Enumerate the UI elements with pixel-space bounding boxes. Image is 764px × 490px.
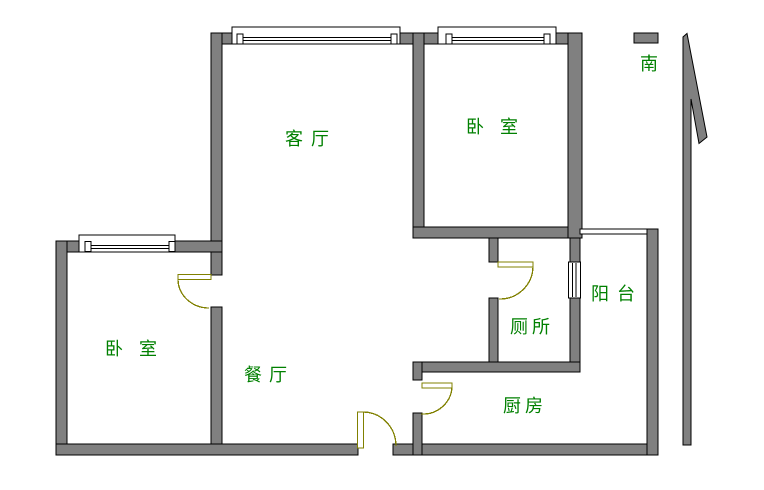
window-living-room — [232, 27, 400, 44]
window-jamb — [85, 242, 91, 252]
windows — [79, 27, 581, 298]
door-swing-arc — [499, 267, 533, 299]
wall-bottom-right — [393, 444, 658, 455]
south-arrow-icon — [683, 34, 707, 446]
label-balcony: 阳台 — [591, 286, 643, 304]
window-bedroom-west — [79, 235, 175, 252]
window-toilet-balcony — [569, 262, 581, 298]
label-kitchen: 厨房 — [503, 398, 547, 416]
window-jamb — [446, 34, 452, 44]
door-swing-arc — [178, 280, 209, 308]
label-living-room: 客厅 — [285, 131, 337, 149]
window-frame — [569, 262, 581, 298]
wall-kitchen-top — [413, 362, 580, 372]
window-bedroom-north — [438, 27, 556, 44]
window-jamb — [169, 242, 175, 252]
door-bedroom-west — [178, 275, 211, 309]
wall-toilet-left-upper — [489, 238, 498, 262]
label-bedroom-north: 卧室 — [466, 119, 534, 137]
window-jamb — [544, 34, 550, 44]
door-swing-arc — [364, 412, 397, 446]
doors — [178, 262, 533, 448]
label-south: 南 — [640, 56, 658, 74]
door-kitchen — [421, 383, 452, 414]
wall-west-outer — [56, 241, 67, 455]
wall-toilet-balcony — [570, 238, 580, 372]
label-toilet: 厕所 — [510, 319, 554, 337]
wall-toilet-left-lower — [489, 298, 498, 372]
wall-west-main-upper — [211, 33, 222, 275]
window-frame — [438, 27, 556, 44]
window-frame — [232, 27, 400, 44]
wall-living-bedroom-divider — [413, 33, 424, 238]
wall-kitchen-door-stub — [413, 362, 422, 380]
wall-hallway-top — [413, 227, 582, 238]
window-jamb — [391, 34, 397, 44]
door-leaf — [422, 383, 452, 388]
wall-west-main-lower — [211, 307, 222, 455]
window-jamb — [237, 34, 243, 44]
door-entrance — [358, 412, 397, 448]
window-frame — [79, 235, 175, 252]
label-dining-room: 餐厅 — [244, 367, 294, 385]
balcony-railing — [580, 229, 647, 234]
door-swing-arc — [421, 388, 452, 414]
door-leaf — [498, 262, 533, 267]
wall-kitchen-dining-lower — [413, 413, 422, 455]
door-leaf — [178, 275, 211, 280]
label-bedroom-west: 卧室 — [105, 341, 173, 359]
door-toilet — [498, 262, 533, 299]
door-leaf — [358, 412, 364, 448]
wall-bedroom-north-right — [568, 33, 582, 238]
wall-balcony-right — [647, 229, 658, 455]
wall-bottom-left — [56, 444, 358, 455]
floor-plan: 客厅 卧室 卧室 餐厅 厕所 厨房 阳台 南 — [0, 0, 764, 490]
wall-top-right-stub — [634, 33, 658, 43]
